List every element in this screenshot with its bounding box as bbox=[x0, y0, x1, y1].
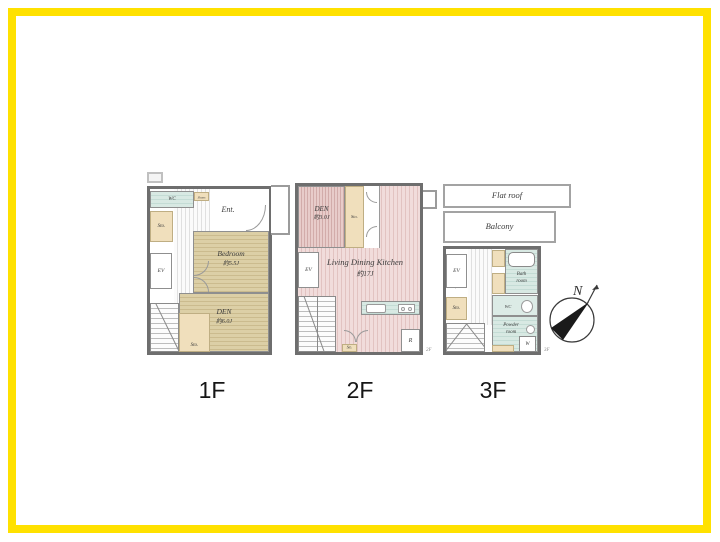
elevator-1f-label: EV bbox=[151, 268, 171, 274]
refrigerator-label: R bbox=[402, 338, 419, 345]
kitchen-sink bbox=[366, 304, 386, 313]
floor-2-plan: Living Dining Kitchen 約17J DEN 約3.0J Sto… bbox=[295, 183, 423, 355]
bathtub bbox=[508, 252, 535, 267]
wc-room: WC bbox=[150, 191, 194, 208]
washing-machine-label: W bbox=[520, 342, 535, 348]
storage-2f-bottom-label: Sto. bbox=[344, 346, 354, 350]
floor-label-3f: 3F bbox=[463, 377, 523, 404]
balcony-label: Balcony bbox=[445, 222, 554, 232]
closet-3f-bottom bbox=[492, 345, 514, 352]
corner-mark-3f: 3F bbox=[544, 348, 550, 353]
closet-2f: Sto. bbox=[345, 186, 364, 248]
kitchen-counter bbox=[361, 301, 420, 315]
north-compass-icon: N bbox=[546, 276, 602, 348]
stairs-guide-line bbox=[446, 324, 467, 351]
shoes-box: Shoes Box bbox=[194, 192, 209, 201]
storage-3f: Sto. bbox=[446, 297, 467, 320]
shoes-box-label: Shoes Box bbox=[197, 195, 207, 201]
closet-door-arc bbox=[366, 226, 377, 237]
storage-upper: Sto. bbox=[150, 211, 173, 242]
closet-door-arc bbox=[366, 192, 377, 203]
compass-north-label: N bbox=[572, 284, 583, 299]
bath-room-name: Bath bbox=[506, 272, 537, 278]
wc-3f: WC bbox=[492, 295, 538, 316]
flat-roof: Flat roof bbox=[443, 184, 571, 208]
refrigerator-space: R bbox=[401, 329, 420, 352]
elevator-1f: EV bbox=[150, 253, 172, 289]
stairs-guide-line bbox=[466, 323, 485, 350]
stairs-divider bbox=[317, 297, 318, 351]
storage-2f-bottom: Sto. bbox=[342, 344, 357, 352]
ldk-size: 約17J bbox=[312, 270, 418, 278]
elevator-3f-label: EV bbox=[447, 268, 466, 274]
closet-3f-a bbox=[492, 250, 505, 267]
bedroom-name: Bedroom bbox=[194, 250, 268, 259]
stairs-3f bbox=[446, 323, 485, 352]
bath-room-sub: room bbox=[506, 279, 537, 285]
storage-3f-label: Sto. bbox=[447, 306, 466, 312]
ldk-name: Living Dining Kitchen bbox=[312, 258, 418, 268]
stove-burner bbox=[408, 307, 412, 311]
meter-box bbox=[147, 172, 163, 183]
stove bbox=[398, 304, 415, 313]
storage-upper-label: Sto. bbox=[151, 224, 172, 230]
wc-label: WC bbox=[151, 197, 193, 203]
floor-label-1f: 1F bbox=[182, 377, 242, 404]
entrance-label: Ent. bbox=[206, 205, 250, 214]
entrance-porch bbox=[271, 185, 290, 235]
washing-machine-space: W bbox=[519, 336, 536, 352]
storage-lower-label: Sto. bbox=[180, 343, 209, 349]
floor-3-plan: Hall EV Sto. Bath room WC Powde bbox=[443, 246, 541, 355]
elevator-3f: EV bbox=[446, 254, 467, 288]
stairs-guide-line bbox=[154, 303, 179, 352]
toilet bbox=[521, 300, 533, 313]
elevator-2f: EV bbox=[298, 252, 319, 288]
den-2f-name: DEN bbox=[299, 205, 344, 213]
elevator-2f-label: EV bbox=[299, 267, 318, 273]
den-2f: DEN 約3.0J bbox=[298, 186, 345, 248]
floor-plan-image: Hall WC Shoes Box Ent. Sto. EV Bedroom 約… bbox=[0, 0, 720, 542]
closet-2f-label: Sto. bbox=[346, 214, 363, 219]
storage-lower: Sto. bbox=[179, 313, 210, 352]
stairs-2f bbox=[298, 296, 336, 352]
stove-burner bbox=[401, 307, 405, 311]
closet-3f-b bbox=[492, 273, 505, 294]
washbasin bbox=[526, 325, 535, 334]
bath-room: Bath room bbox=[505, 249, 538, 294]
flat-roof-label: Flat roof bbox=[445, 191, 569, 201]
den-2f-size: 約3.0J bbox=[299, 215, 344, 222]
floor-label-2f: 2F bbox=[330, 377, 390, 404]
balcony: Balcony bbox=[443, 211, 556, 243]
corner-mark-2f: 2F bbox=[426, 348, 432, 353]
closet-doors bbox=[364, 186, 380, 248]
side-box-2f bbox=[423, 190, 437, 209]
stairs-1f bbox=[150, 303, 179, 352]
stairs-guide-line bbox=[303, 296, 326, 352]
